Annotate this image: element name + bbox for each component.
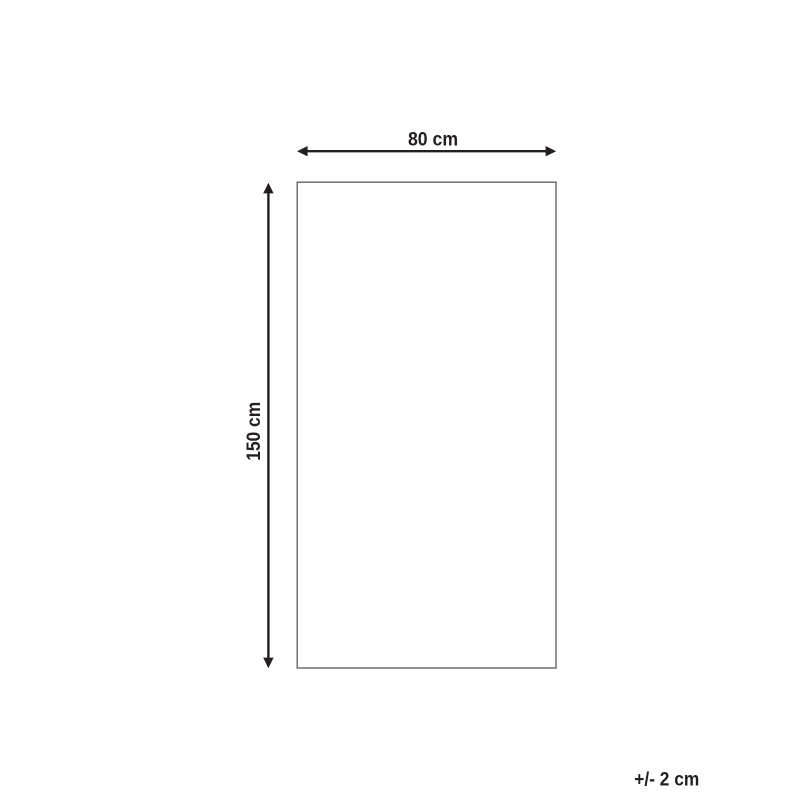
svg-text:+/- 2 cm: +/- 2 cm <box>634 769 699 791</box>
svg-text:80 cm: 80 cm <box>408 128 458 150</box>
svg-text:150 cm: 150 cm <box>243 402 265 461</box>
